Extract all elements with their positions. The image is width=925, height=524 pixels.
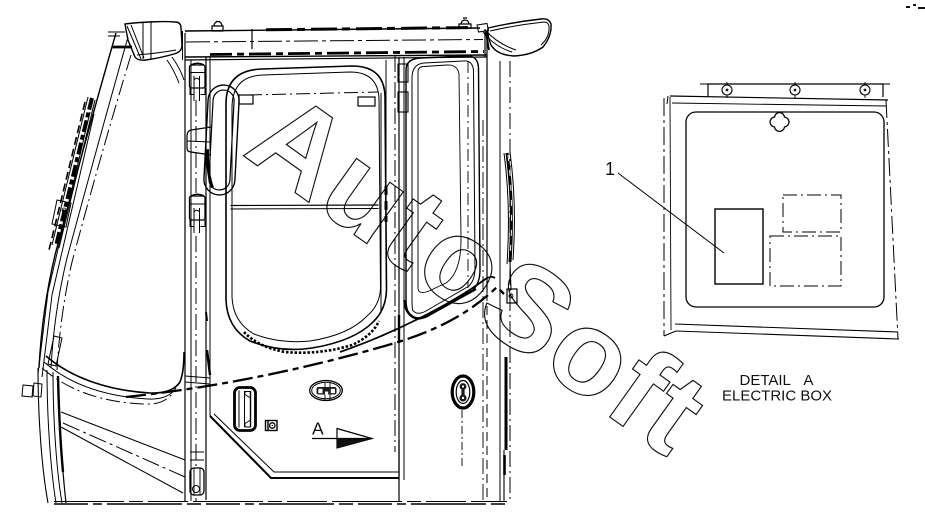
svg-text:A: A: [312, 419, 324, 439]
svg-text:DETAIL A: DETAIL A: [740, 372, 814, 389]
svg-text:ELECTRIC BOX: ELECTRIC BOX: [722, 387, 832, 404]
svg-text:1: 1: [605, 159, 615, 179]
